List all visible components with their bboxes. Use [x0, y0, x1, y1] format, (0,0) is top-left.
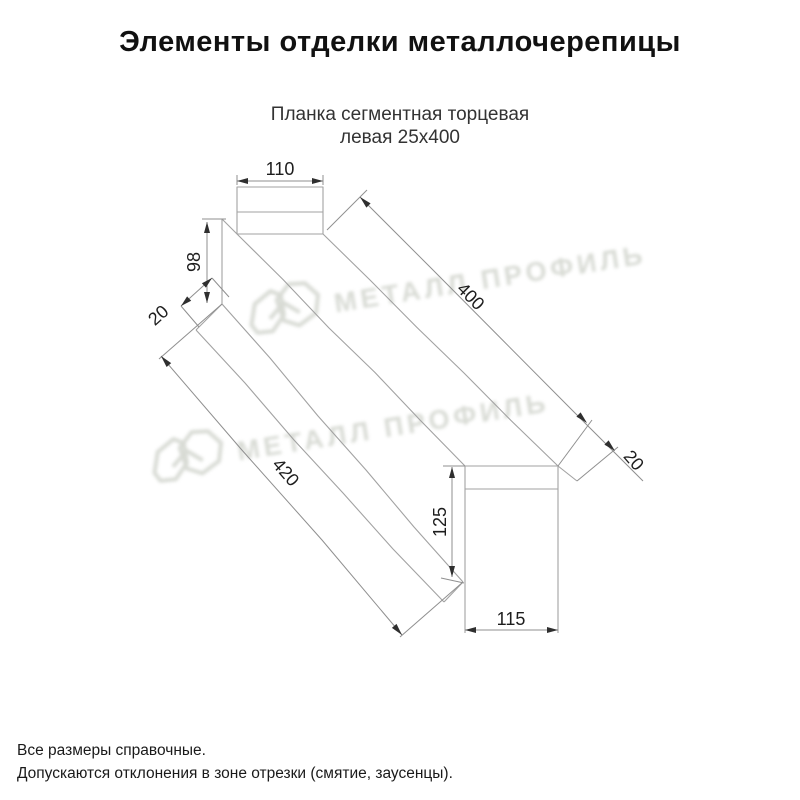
footnote-line1: Все размеры справочные.	[17, 739, 453, 762]
dim-top-width-label: 110	[266, 159, 295, 179]
dimension-lines	[161, 181, 643, 635]
technical-drawing: 110 98 20 400 20 420 125 115	[0, 0, 800, 800]
dimension-arrows	[161, 178, 615, 635]
dim-end-flange-label: 20	[620, 446, 648, 474]
extension-lines	[159, 175, 618, 637]
strip-outline	[196, 187, 577, 633]
dim-side-height-label: 98	[184, 252, 204, 272]
dim-far-width-label: 115	[497, 609, 526, 629]
dim-length-top-label: 400	[453, 279, 488, 314]
footnote-line2: Допускаются отклонения в зоне отрезки (с…	[17, 762, 453, 785]
footnotes: Все размеры справочные. Допускаются откл…	[17, 739, 453, 785]
dim-near-flange-label: 20	[144, 301, 172, 329]
dim-far-height-label: 125	[430, 507, 450, 537]
